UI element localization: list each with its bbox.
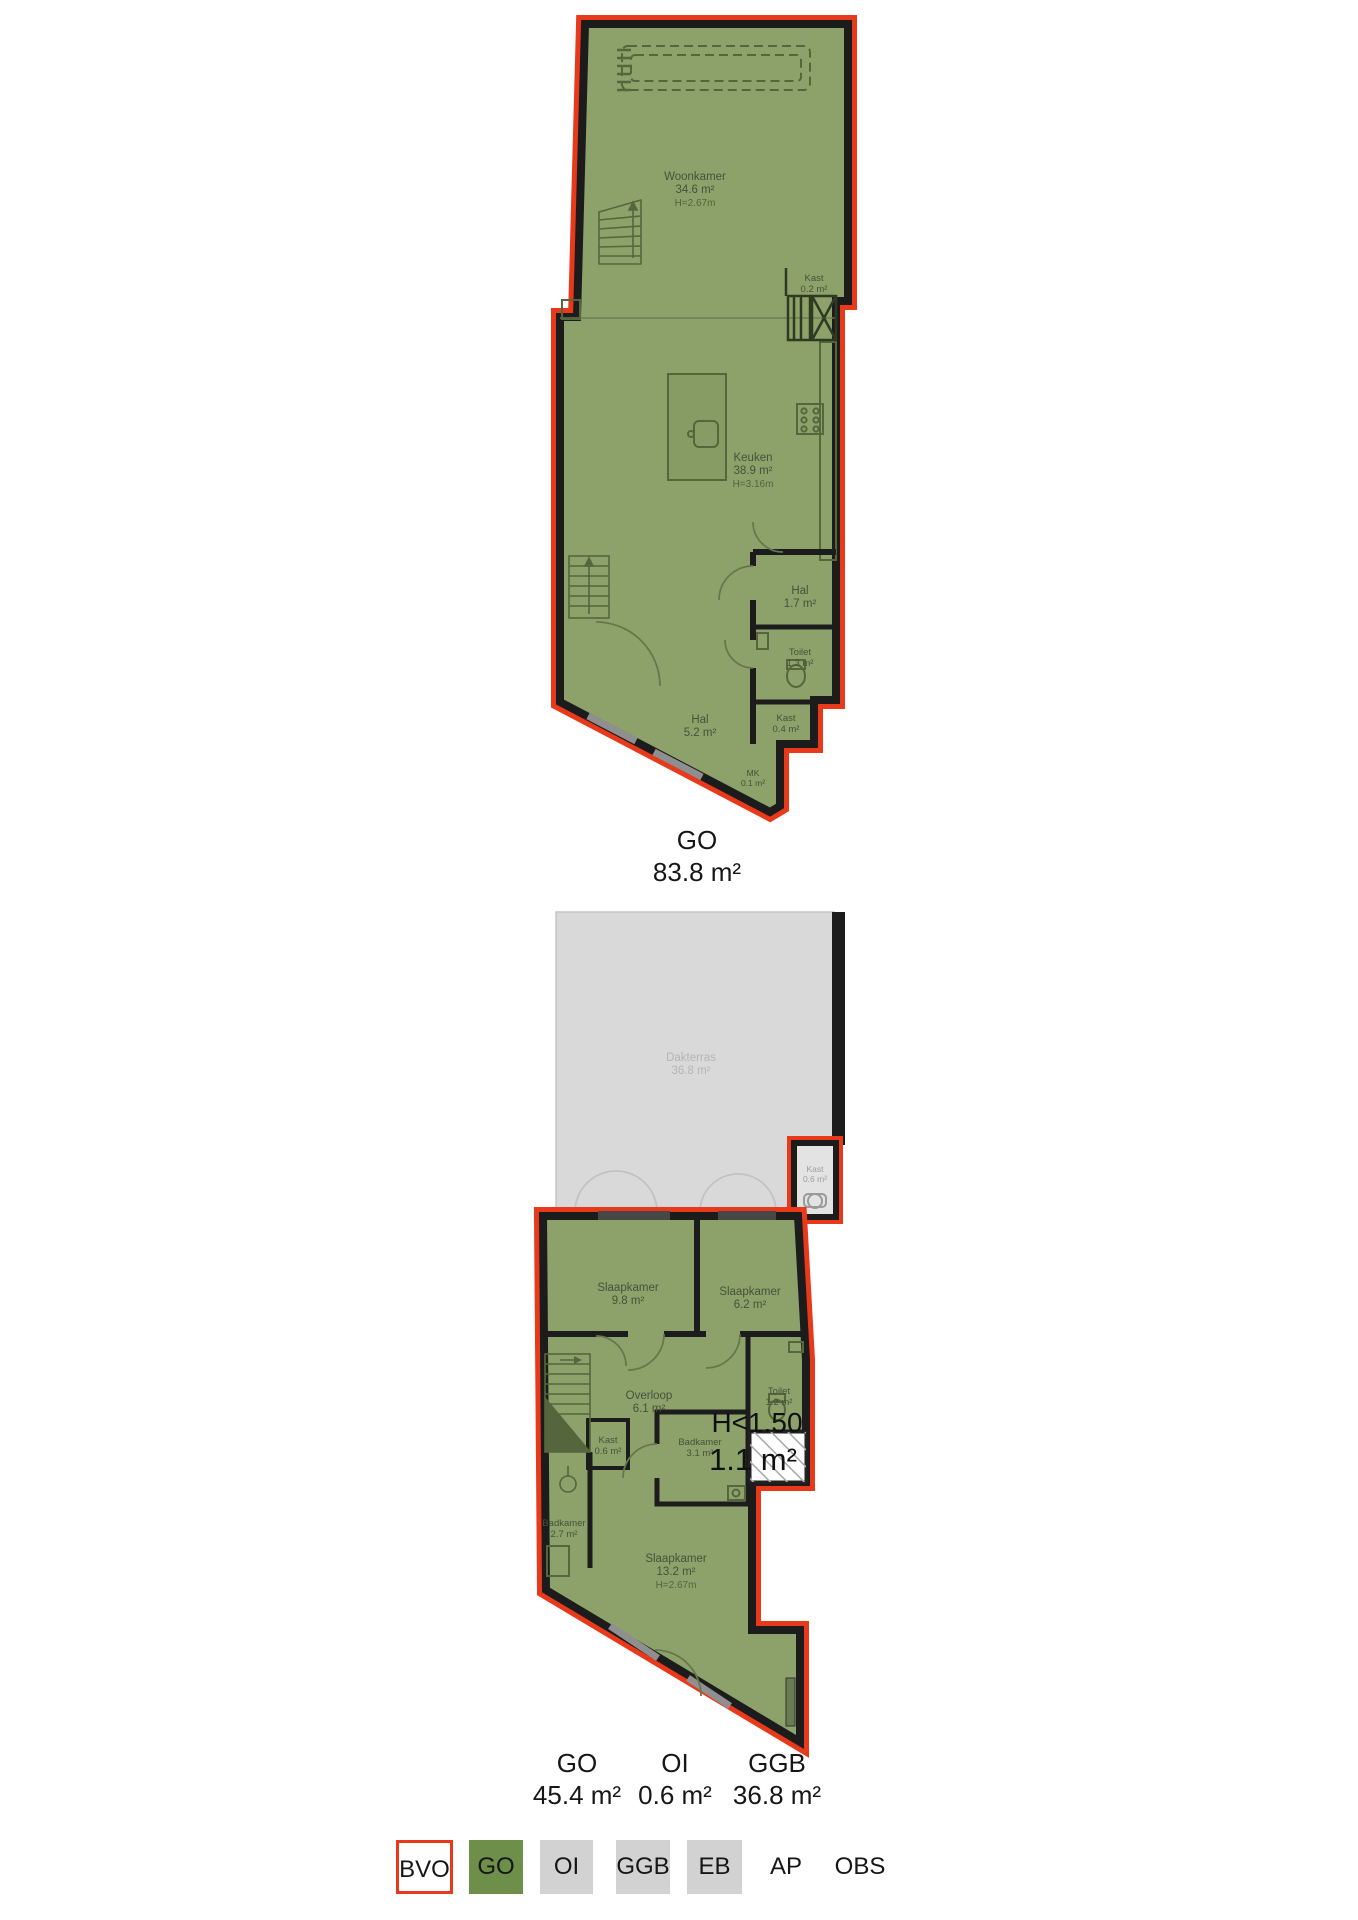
low-headroom-area: 1.1 m² [709,1442,797,1477]
room-label-slaapkamer1: Slaapkamer [597,1282,659,1294]
floor2-kast-oi: Kast 0.6 m² [794,1143,836,1217]
legend-chip-ap: AP [757,1840,815,1894]
legend-chip-bvo: BVO [396,1840,453,1894]
legend-chip-eb: EB [687,1840,742,1894]
room-area-badkamer2: 2.7 m² [551,1529,578,1540]
floor1-kitchen-island [668,374,726,480]
low-headroom-label: H<1.50 [711,1407,802,1438]
floor2-dakterras-wall [832,912,845,1145]
room-label-hal-klein: Hal [791,585,808,597]
legend-chip-go: GO [469,1840,523,1894]
room-label-badkamer2: Badkamer [542,1518,585,1529]
legend-chip-ggb: GGB [616,1840,670,1894]
room-area-mk: 0.1 m² [741,778,765,788]
room-height-keuken: H=3.16m [733,479,774,490]
legend-chip-obs: OBS [828,1840,892,1894]
room-area-kast-onder: 0.4 m² [773,724,800,735]
room-label-overloop: Overloop [626,1390,673,1402]
floor2-summary-go-area: 45.4 m² [533,1780,621,1810]
room-height-slaapkamer3: H=2.67m [656,1580,697,1591]
room-label-keuken: Keuken [733,452,772,464]
room-area-kast-oi: 0.6 m² [803,1174,827,1184]
floor2-summaries: GO 45.4 m² OI 0.6 m² GGB 36.8 m² [533,1748,821,1810]
floorplan-page: Woonkamer 34.6 m² H=2.67m Keuken 38.9 m²… [0,0,1358,1920]
room-label-toilet-f2: Toilet [768,1386,791,1397]
room-label-woonkamer: Woonkamer [664,171,726,183]
room-label-kast-boven: Kast [804,273,823,284]
room-area-slaapkamer2: 6.2 m² [734,1299,767,1311]
room-label-slaapkamer2: Slaapkamer [719,1286,781,1298]
floor1-summary-area: 83.8 m² [653,857,741,887]
floor2-plan: Dakterras 36.8 m² Kast 0.6 m² [542,912,845,1742]
room-area-keuken: 38.9 m² [734,465,773,477]
floor2-summary-ggb-code: GGB [748,1748,806,1778]
floorplans-svg: Woonkamer 34.6 m² H=2.67m Keuken 38.9 m²… [0,0,1358,1920]
room-area-hal: 5.2 m² [684,727,717,739]
room-label-hal: Hal [691,714,708,726]
floor1-summary: GO 83.8 m² [653,825,741,887]
room-area-slaapkamer3: 13.2 m² [657,1566,696,1578]
floor2-summary-ggb-area: 36.8 m² [733,1780,821,1810]
legend-chip-oi: OI [540,1840,593,1894]
room-label-mk: MK [747,768,760,778]
room-label-dakterras: Dakterras [666,1052,716,1064]
room-area-kast-f2: 0.6 m² [595,1446,622,1457]
floor1-plan: Woonkamer 34.6 m² H=2.67m Keuken 38.9 m²… [560,24,848,812]
room-area-overloop: 6.1 m² [633,1403,666,1415]
room-label-slaapkamer3: Slaapkamer [645,1553,707,1565]
room-area-woonkamer: 34.6 m² [676,184,715,196]
floor1-summary-code: GO [677,825,717,855]
room-label-kast-oi: Kast [806,1164,824,1174]
room-area-toilet-f1: 1.3 m² [787,658,814,669]
room-area-slaapkamer1: 9.8 m² [612,1295,645,1307]
floor2-summary-go-code: GO [557,1748,597,1778]
room-label-toilet-f1: Toilet [789,647,812,658]
room-label-kast-onder: Kast [776,713,795,724]
room-height-woonkamer: H=2.67m [675,198,716,209]
room-area-hal-klein: 1.7 m² [784,598,817,610]
room-area-dakterras: 36.8 m² [672,1065,711,1077]
room-label-kast-f2: Kast [598,1435,617,1446]
floor2-summary-oi-code: OI [661,1748,688,1778]
room-area-kast-boven: 0.2 m² [801,284,828,295]
floor2-summary-oi-area: 0.6 m² [638,1780,712,1810]
